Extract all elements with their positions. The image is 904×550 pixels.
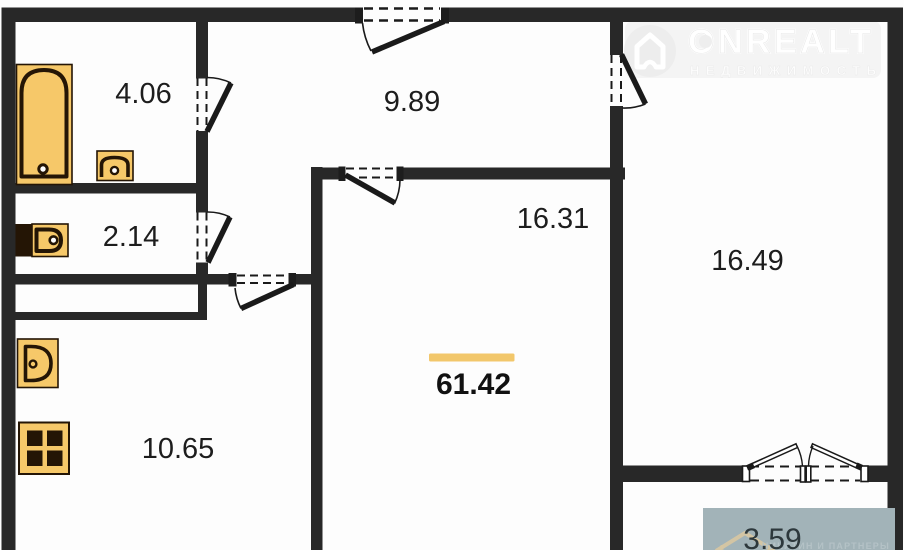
svg-text:3.59: 3.59	[743, 523, 801, 550]
svg-text:16.31: 16.31	[517, 203, 590, 235]
svg-text:ONREALT: ONREALT	[688, 23, 874, 61]
svg-text:НЕДВИЖИМОСТЬ: НЕДВИЖИМОСТЬ	[690, 63, 882, 78]
svg-text:10.65: 10.65	[142, 433, 215, 465]
svg-text:2.14: 2.14	[103, 221, 159, 253]
svg-text:16.49: 16.49	[711, 245, 784, 277]
svg-text:9.89: 9.89	[384, 86, 440, 118]
svg-text:61.42: 61.42	[436, 368, 511, 401]
svg-text:4.06: 4.06	[115, 78, 171, 110]
